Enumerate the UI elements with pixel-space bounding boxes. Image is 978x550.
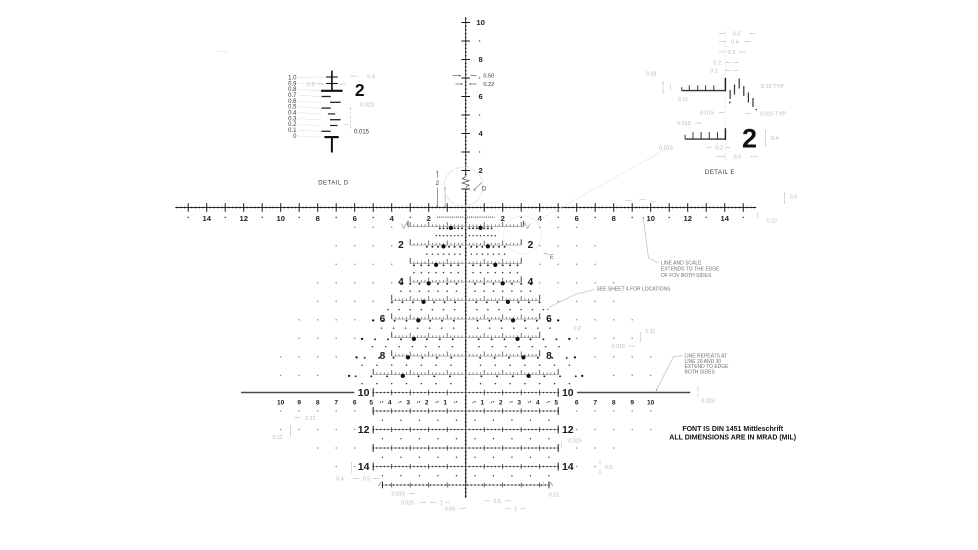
svg-text:E: E (550, 254, 554, 261)
svg-text:10: 10 (358, 387, 370, 399)
svg-text:0.015: 0.015 (354, 130, 370, 136)
svg-text:2: 2 (501, 214, 505, 223)
svg-text:8: 8 (316, 400, 320, 407)
svg-text:0.5: 0.5 (363, 477, 371, 483)
svg-text:0.22: 0.22 (483, 82, 494, 88)
svg-text:3: 3 (406, 400, 410, 407)
svg-text:8: 8 (612, 214, 616, 223)
svg-text:SEE SHEET 4 FOR LOCATIONS: SEE SHEET 4 FOR LOCATIONS (597, 287, 672, 293)
svg-text:2: 2 (528, 240, 534, 251)
svg-text:0.015 TYP: 0.015 TYP (760, 112, 787, 118)
svg-text:0.015: 0.015 (677, 121, 691, 127)
svg-text:0.11: 0.11 (645, 329, 655, 335)
svg-text:1: 1 (440, 501, 443, 507)
svg-text:6: 6 (478, 92, 482, 101)
svg-text:0.025: 0.025 (401, 501, 415, 507)
svg-text:2: 2 (499, 400, 503, 407)
svg-text:10: 10 (276, 214, 284, 223)
svg-text:6: 6 (353, 400, 357, 407)
svg-text:6: 6 (546, 314, 552, 325)
svg-text:8: 8 (546, 351, 552, 362)
svg-text:8: 8 (478, 55, 482, 64)
svg-text:12: 12 (562, 424, 574, 436)
svg-text:14: 14 (562, 461, 574, 473)
svg-text:7: 7 (334, 400, 338, 407)
svg-text:0.025: 0.025 (568, 439, 582, 445)
svg-text:EXTENDS TO THE EDGE: EXTENDS TO THE EDGE (661, 267, 720, 273)
svg-text:8: 8 (316, 214, 320, 223)
svg-text:0.22: 0.22 (549, 492, 560, 498)
svg-text:1: 1 (443, 400, 447, 407)
svg-text:8: 8 (612, 400, 616, 407)
svg-text:2: 2 (398, 240, 404, 251)
svg-text:5: 5 (369, 400, 373, 407)
svg-text:2: 2 (355, 80, 365, 100)
svg-text:14: 14 (720, 214, 729, 223)
svg-text:0.6: 0.6 (367, 74, 375, 80)
svg-text:2: 2 (425, 400, 429, 407)
svg-text:10: 10 (277, 400, 285, 407)
svg-text:D: D (482, 186, 487, 193)
svg-text:2: 2 (436, 180, 440, 187)
svg-text:4: 4 (536, 400, 540, 407)
svg-text:5: 5 (554, 400, 558, 407)
svg-text:8: 8 (380, 351, 386, 362)
svg-text:1: 1 (480, 400, 484, 407)
svg-text:0.5: 0.5 (733, 32, 741, 38)
svg-text:9: 9 (630, 400, 634, 407)
svg-text:0.5: 0.5 (307, 82, 315, 88)
svg-text:9: 9 (297, 400, 301, 407)
svg-text:0.023: 0.023 (701, 398, 715, 404)
svg-text:3: 3 (517, 400, 521, 407)
svg-text:LINE AND SCALE: LINE AND SCALE (661, 261, 702, 267)
svg-text:10: 10 (562, 387, 574, 399)
svg-text:0.2: 0.2 (713, 61, 721, 67)
svg-text:DETAIL D: DETAIL D (318, 181, 349, 187)
svg-text:BOTH SIDES: BOTH SIDES (685, 369, 716, 375)
svg-text:10: 10 (647, 400, 655, 407)
svg-text:0.2: 0.2 (716, 145, 724, 151)
svg-text:6: 6 (575, 214, 579, 223)
svg-text:0.5: 0.5 (493, 499, 501, 505)
svg-text:0.28: 0.28 (646, 72, 657, 78)
svg-text:7: 7 (593, 400, 597, 407)
svg-text:ALL DIMENSIONS ARE IN MRAD (MI: ALL DIMENSIONS ARE IN MRAD (MIL) (669, 435, 796, 442)
svg-text:0.5: 0.5 (605, 465, 613, 471)
svg-text:12: 12 (239, 214, 247, 223)
svg-text:0.015: 0.015 (659, 146, 673, 152)
svg-text:6: 6 (380, 314, 386, 325)
svg-text:FONT IS DIN 1451 Mittleschrift: FONT IS DIN 1451 Mittleschrift (682, 426, 783, 433)
svg-text:OF FOV BOTH SIDES: OF FOV BOTH SIDES (661, 273, 712, 279)
svg-text:0.015: 0.015 (391, 492, 405, 498)
svg-text:10: 10 (646, 214, 654, 223)
svg-text:0.5: 0.5 (790, 194, 798, 200)
svg-text:0.05: 0.05 (445, 507, 456, 513)
svg-text:14: 14 (202, 214, 211, 223)
svg-text:2: 2 (427, 214, 431, 223)
svg-text:6: 6 (353, 214, 357, 223)
svg-text:0.10 TYP: 0.10 TYP (761, 84, 784, 90)
svg-text:0.2: 0.2 (574, 326, 582, 332)
svg-text:0.1: 0.1 (710, 68, 718, 74)
svg-text:0.50: 0.50 (483, 74, 494, 80)
svg-text:0.11: 0.11 (272, 435, 282, 441)
svg-text:4: 4 (388, 400, 392, 407)
svg-text:0.023: 0.023 (360, 103, 374, 109)
svg-text:2: 2 (742, 124, 757, 154)
svg-text:4: 4 (398, 277, 404, 288)
svg-text:0.22: 0.22 (767, 219, 778, 225)
svg-text:4: 4 (528, 277, 534, 288)
svg-text:0.015: 0.015 (612, 344, 626, 350)
svg-text:10: 10 (476, 18, 484, 27)
svg-text:2: 2 (478, 166, 482, 175)
svg-text:0.4: 0.4 (731, 40, 739, 46)
svg-text:12: 12 (683, 214, 691, 223)
svg-text:12: 12 (358, 424, 370, 436)
svg-text:0.4: 0.4 (336, 476, 344, 482)
svg-text:1: 1 (514, 506, 517, 512)
svg-text:0.5: 0.5 (734, 155, 742, 161)
svg-text:0.11: 0.11 (305, 416, 315, 422)
svg-text:DETAIL E: DETAIL E (705, 170, 735, 176)
svg-text:0.015: 0.015 (700, 111, 714, 117)
svg-text:6: 6 (575, 400, 579, 407)
svg-text:14: 14 (358, 461, 370, 473)
svg-text:0.3: 0.3 (728, 50, 736, 56)
svg-text:0.4: 0.4 (771, 136, 779, 142)
svg-text:0.11: 0.11 (678, 97, 688, 103)
